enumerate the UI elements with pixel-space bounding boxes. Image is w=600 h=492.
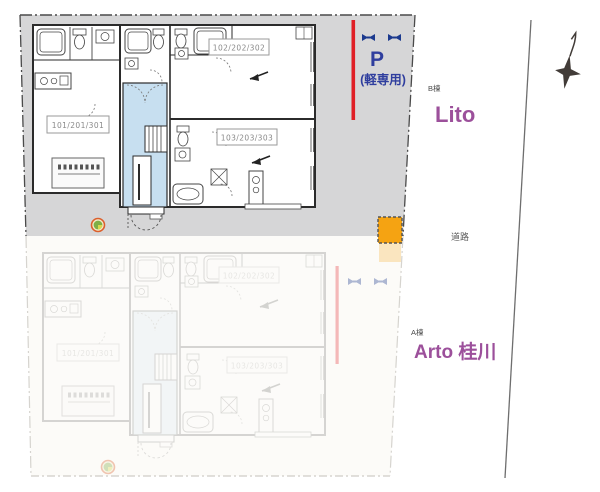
utility-box — [378, 217, 402, 243]
utility-box-faded — [379, 243, 401, 262]
site-plan-image: 101/201/301 102/202/302 103/203/303 P (軽… — [0, 0, 600, 492]
parking-note: (軽専用) — [360, 72, 406, 87]
parking-symbol: P — [370, 48, 384, 71]
building-b-tag: B棟 — [428, 83, 441, 93]
north-compass-icon — [552, 31, 587, 91]
road-line — [505, 20, 531, 478]
building-a-tag: A棟 — [411, 327, 424, 337]
road-label: 道路 — [451, 231, 469, 242]
parking-marker-line-faded — [336, 266, 339, 364]
building-b-name: Lito — [435, 102, 475, 127]
parking-marker-line — [352, 20, 356, 120]
building-a-name: Arto 桂川 — [414, 340, 496, 363]
